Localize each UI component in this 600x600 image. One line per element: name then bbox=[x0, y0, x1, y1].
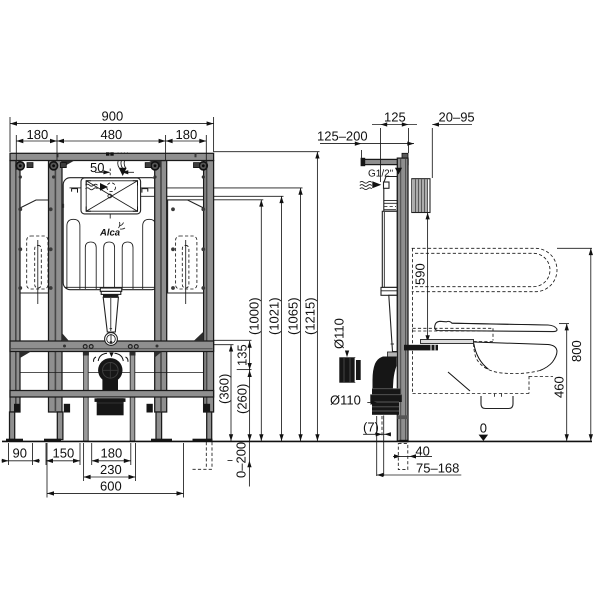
svg-text:800: 800 bbox=[569, 340, 584, 362]
svg-text:(1215): (1215) bbox=[303, 297, 318, 335]
svg-text:(1065): (1065) bbox=[286, 297, 301, 335]
svg-text:180: 180 bbox=[27, 127, 49, 142]
svg-text:(360): (360) bbox=[217, 374, 232, 404]
svg-text:230: 230 bbox=[100, 462, 122, 477]
svg-text:Alca: Alca bbox=[99, 228, 120, 239]
svg-text:0–200: 0–200 bbox=[234, 442, 249, 478]
svg-text:125–200: 125–200 bbox=[317, 129, 368, 144]
svg-text:(7): (7) bbox=[363, 420, 379, 435]
svg-text:Ø110: Ø110 bbox=[330, 393, 361, 408]
svg-text:50: 50 bbox=[90, 160, 104, 175]
svg-text:460: 460 bbox=[552, 376, 567, 398]
svg-text:90: 90 bbox=[13, 446, 27, 461]
svg-text:40: 40 bbox=[415, 444, 429, 459]
svg-text:75–168: 75–168 bbox=[416, 461, 459, 476]
svg-text:600: 600 bbox=[100, 478, 122, 493]
svg-text:(260): (260) bbox=[235, 384, 250, 414]
svg-text:480: 480 bbox=[101, 127, 123, 142]
svg-text:135: 135 bbox=[235, 344, 250, 366]
svg-text:180: 180 bbox=[176, 127, 198, 142]
svg-text:Ø110: Ø110 bbox=[332, 318, 347, 349]
svg-text:180: 180 bbox=[101, 446, 123, 461]
svg-text:125: 125 bbox=[384, 110, 406, 125]
svg-text:150: 150 bbox=[53, 446, 75, 461]
svg-text:0: 0 bbox=[480, 421, 487, 436]
svg-text:900: 900 bbox=[102, 109, 124, 124]
svg-text:590: 590 bbox=[413, 263, 428, 285]
svg-text:20–95: 20–95 bbox=[439, 110, 475, 125]
svg-text:(1021): (1021) bbox=[267, 297, 282, 335]
svg-text:(1000): (1000) bbox=[247, 297, 262, 335]
